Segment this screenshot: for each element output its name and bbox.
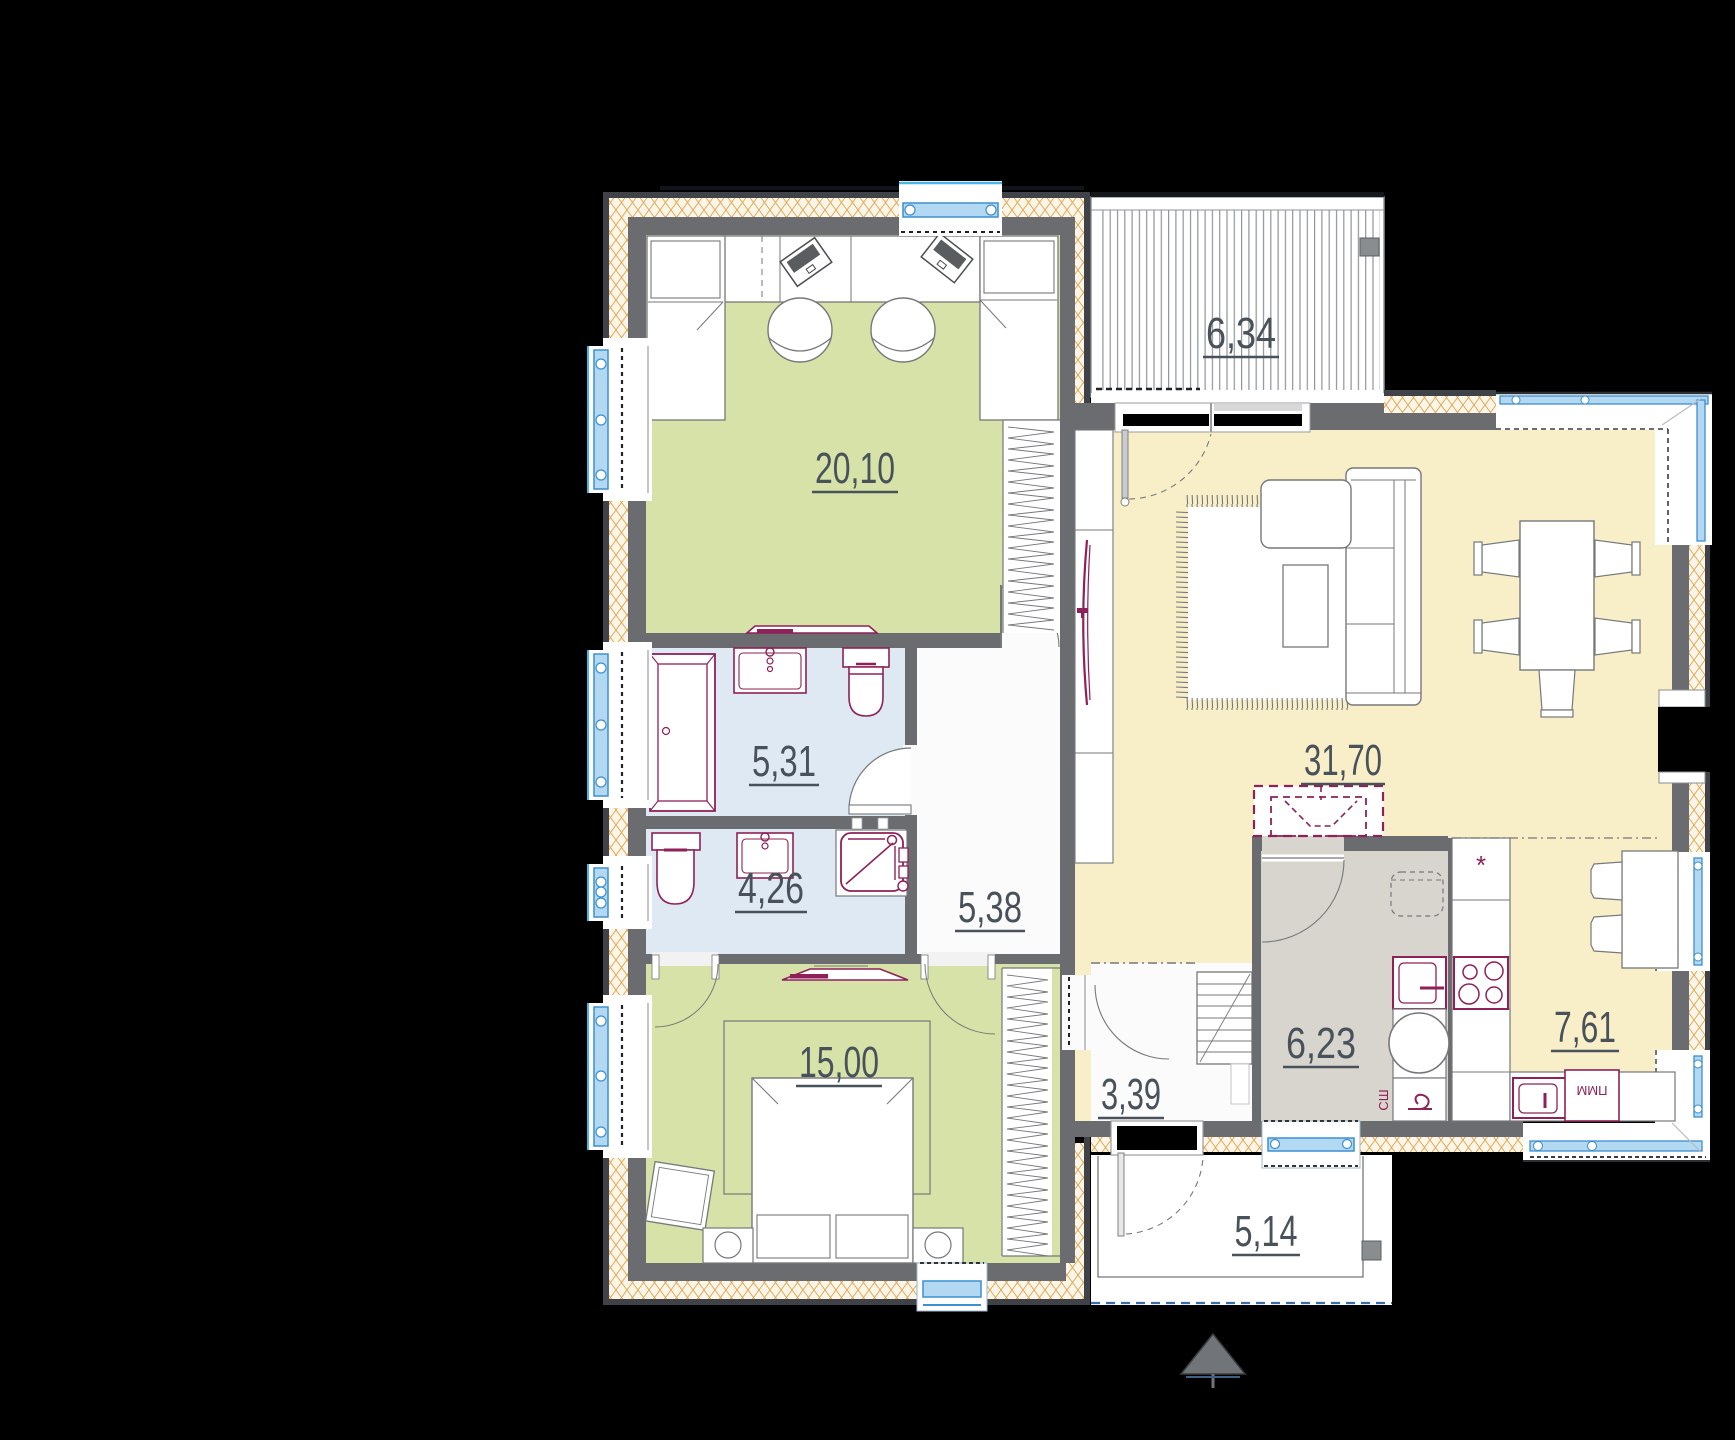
- svg-text:5,38: 5,38: [958, 883, 1022, 932]
- svg-text:20,10: 20,10: [815, 444, 895, 493]
- svg-text:7,61: 7,61: [1554, 1003, 1616, 1052]
- svg-text:4,26: 4,26: [738, 864, 804, 913]
- svg-text:ПММ: ПММ: [1576, 1083, 1607, 1098]
- svg-text:5,14: 5,14: [1235, 1207, 1298, 1256]
- svg-text:*: *: [1476, 850, 1486, 880]
- svg-text:3,39: 3,39: [1101, 1070, 1161, 1119]
- svg-text:6,34: 6,34: [1206, 309, 1276, 358]
- svg-text:6,23: 6,23: [1286, 1019, 1356, 1068]
- svg-text:СШ: СШ: [1376, 1089, 1391, 1110]
- svg-text:5,31: 5,31: [752, 737, 816, 786]
- svg-text:15,00: 15,00: [799, 1038, 879, 1087]
- svg-text:31,70: 31,70: [1304, 736, 1382, 785]
